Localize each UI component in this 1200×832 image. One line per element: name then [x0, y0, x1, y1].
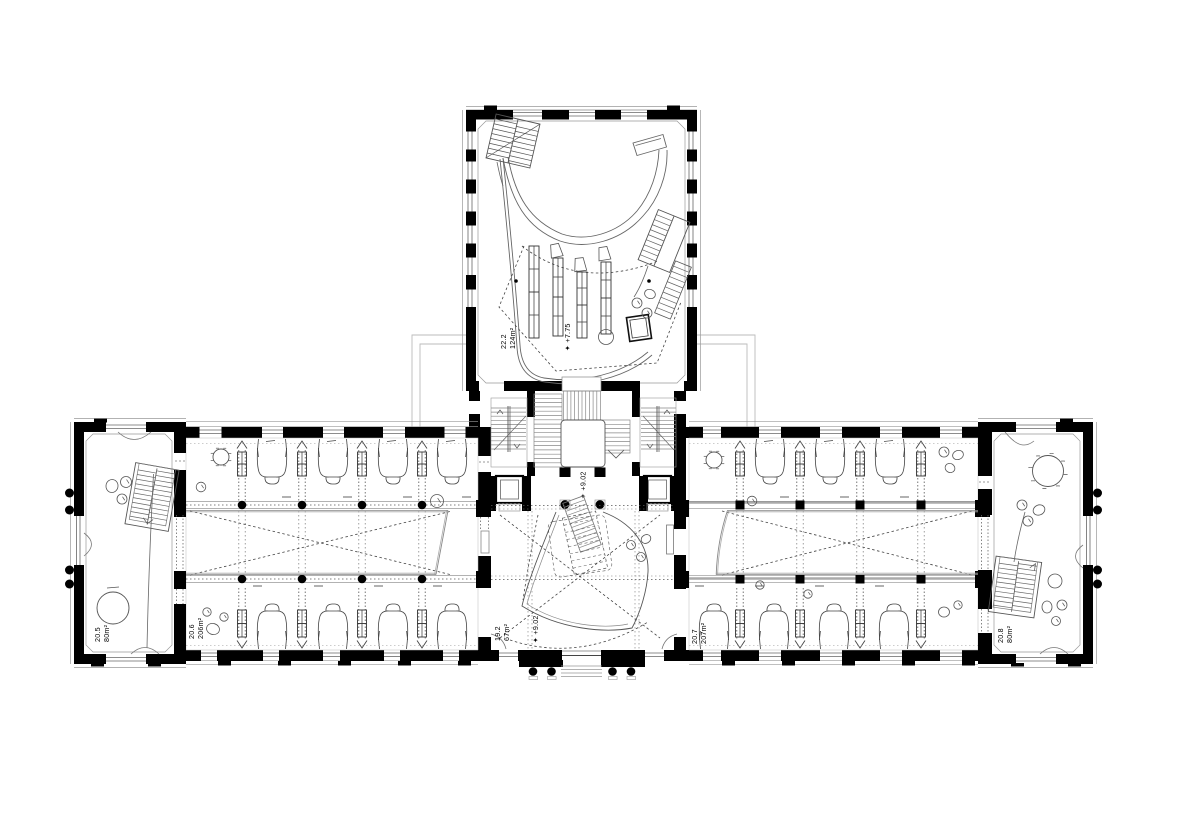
svg-text:✦ +9.02: ✦ +9.02 [579, 471, 588, 499]
svg-text:20.5: 20.5 [93, 627, 102, 642]
svg-text:19.2: 19.2 [493, 626, 502, 641]
svg-text:20.7: 20.7 [690, 629, 699, 644]
svg-text:124m²: 124m² [508, 327, 517, 349]
svg-text:20.8: 20.8 [996, 628, 1005, 643]
svg-text:80m²: 80m² [102, 624, 111, 642]
svg-text:✦ +7.75: ✦ +7.75 [563, 323, 572, 351]
svg-text:67m²: 67m² [502, 623, 511, 641]
svg-text:22.2: 22.2 [499, 334, 508, 349]
svg-text:206m²: 206m² [196, 617, 205, 639]
svg-text:20.6: 20.6 [187, 624, 196, 639]
svg-text:✦ +9.02: ✦ +9.02 [531, 615, 540, 643]
svg-text:207m²: 207m² [699, 622, 708, 644]
svg-text:80m²: 80m² [1005, 625, 1014, 643]
